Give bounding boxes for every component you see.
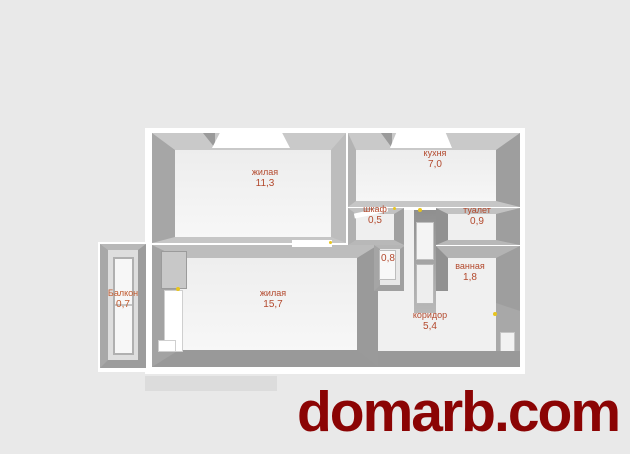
- room-name: кухня: [395, 148, 475, 159]
- room-label-balcony: Балкон 0,7: [97, 288, 149, 310]
- room-area: 11,3: [225, 178, 305, 189]
- room-label-bath: ванная 1,8: [440, 261, 500, 283]
- room-area: 0,8: [374, 253, 402, 264]
- room-name: шкаф: [347, 204, 403, 215]
- handle-dot-icon: [418, 208, 422, 212]
- interior-door: [416, 222, 434, 260]
- room-area: 0,5: [347, 215, 403, 226]
- handle-dot-icon: [329, 241, 332, 244]
- room-name: ванная: [440, 261, 500, 272]
- corridor-bottom-wall: [378, 351, 520, 367]
- corner-door: [158, 340, 176, 352]
- room-area: 7,0: [395, 159, 475, 170]
- room-label-niche: 0,8: [374, 253, 402, 264]
- room-name: туалет: [447, 205, 507, 216]
- window-living-1: [212, 133, 290, 148]
- balcony-door-frame: [161, 251, 187, 289]
- floor-plan-stage: жилая 11,3 кухня 7,0 шкаф 0,5 туалет 0,9…: [0, 0, 630, 454]
- room-label-corridor: коридор 5,4: [390, 310, 470, 332]
- interior-door: [416, 264, 434, 304]
- room-area: 1,8: [440, 272, 500, 283]
- site-watermark: domarb.com: [288, 381, 628, 445]
- room-name: жилая: [233, 288, 313, 299]
- room-name: жилая: [225, 167, 305, 178]
- room-label-living-1: жилая 11,3: [225, 167, 305, 189]
- plan-shadow: [145, 376, 277, 391]
- window-kitchen: [390, 133, 452, 148]
- room-area: 0,7: [97, 299, 149, 310]
- room-area: 15,7: [233, 299, 313, 310]
- room-area: 0,9: [447, 216, 507, 227]
- room-label-kitchen: кухня 7,0: [395, 148, 475, 170]
- room-label-toilet: туалет 0,9: [447, 205, 507, 227]
- room-label-living-2: жилая 15,7: [233, 288, 313, 310]
- room-name: Балкон: [97, 288, 149, 299]
- handle-dot-icon: [493, 312, 497, 316]
- wall-vent: [292, 240, 332, 247]
- room-name: коридор: [390, 310, 470, 321]
- room-area: 5,4: [390, 321, 470, 332]
- room-label-closet: шкаф 0,5: [347, 204, 403, 226]
- handle-dot-icon: [176, 287, 180, 291]
